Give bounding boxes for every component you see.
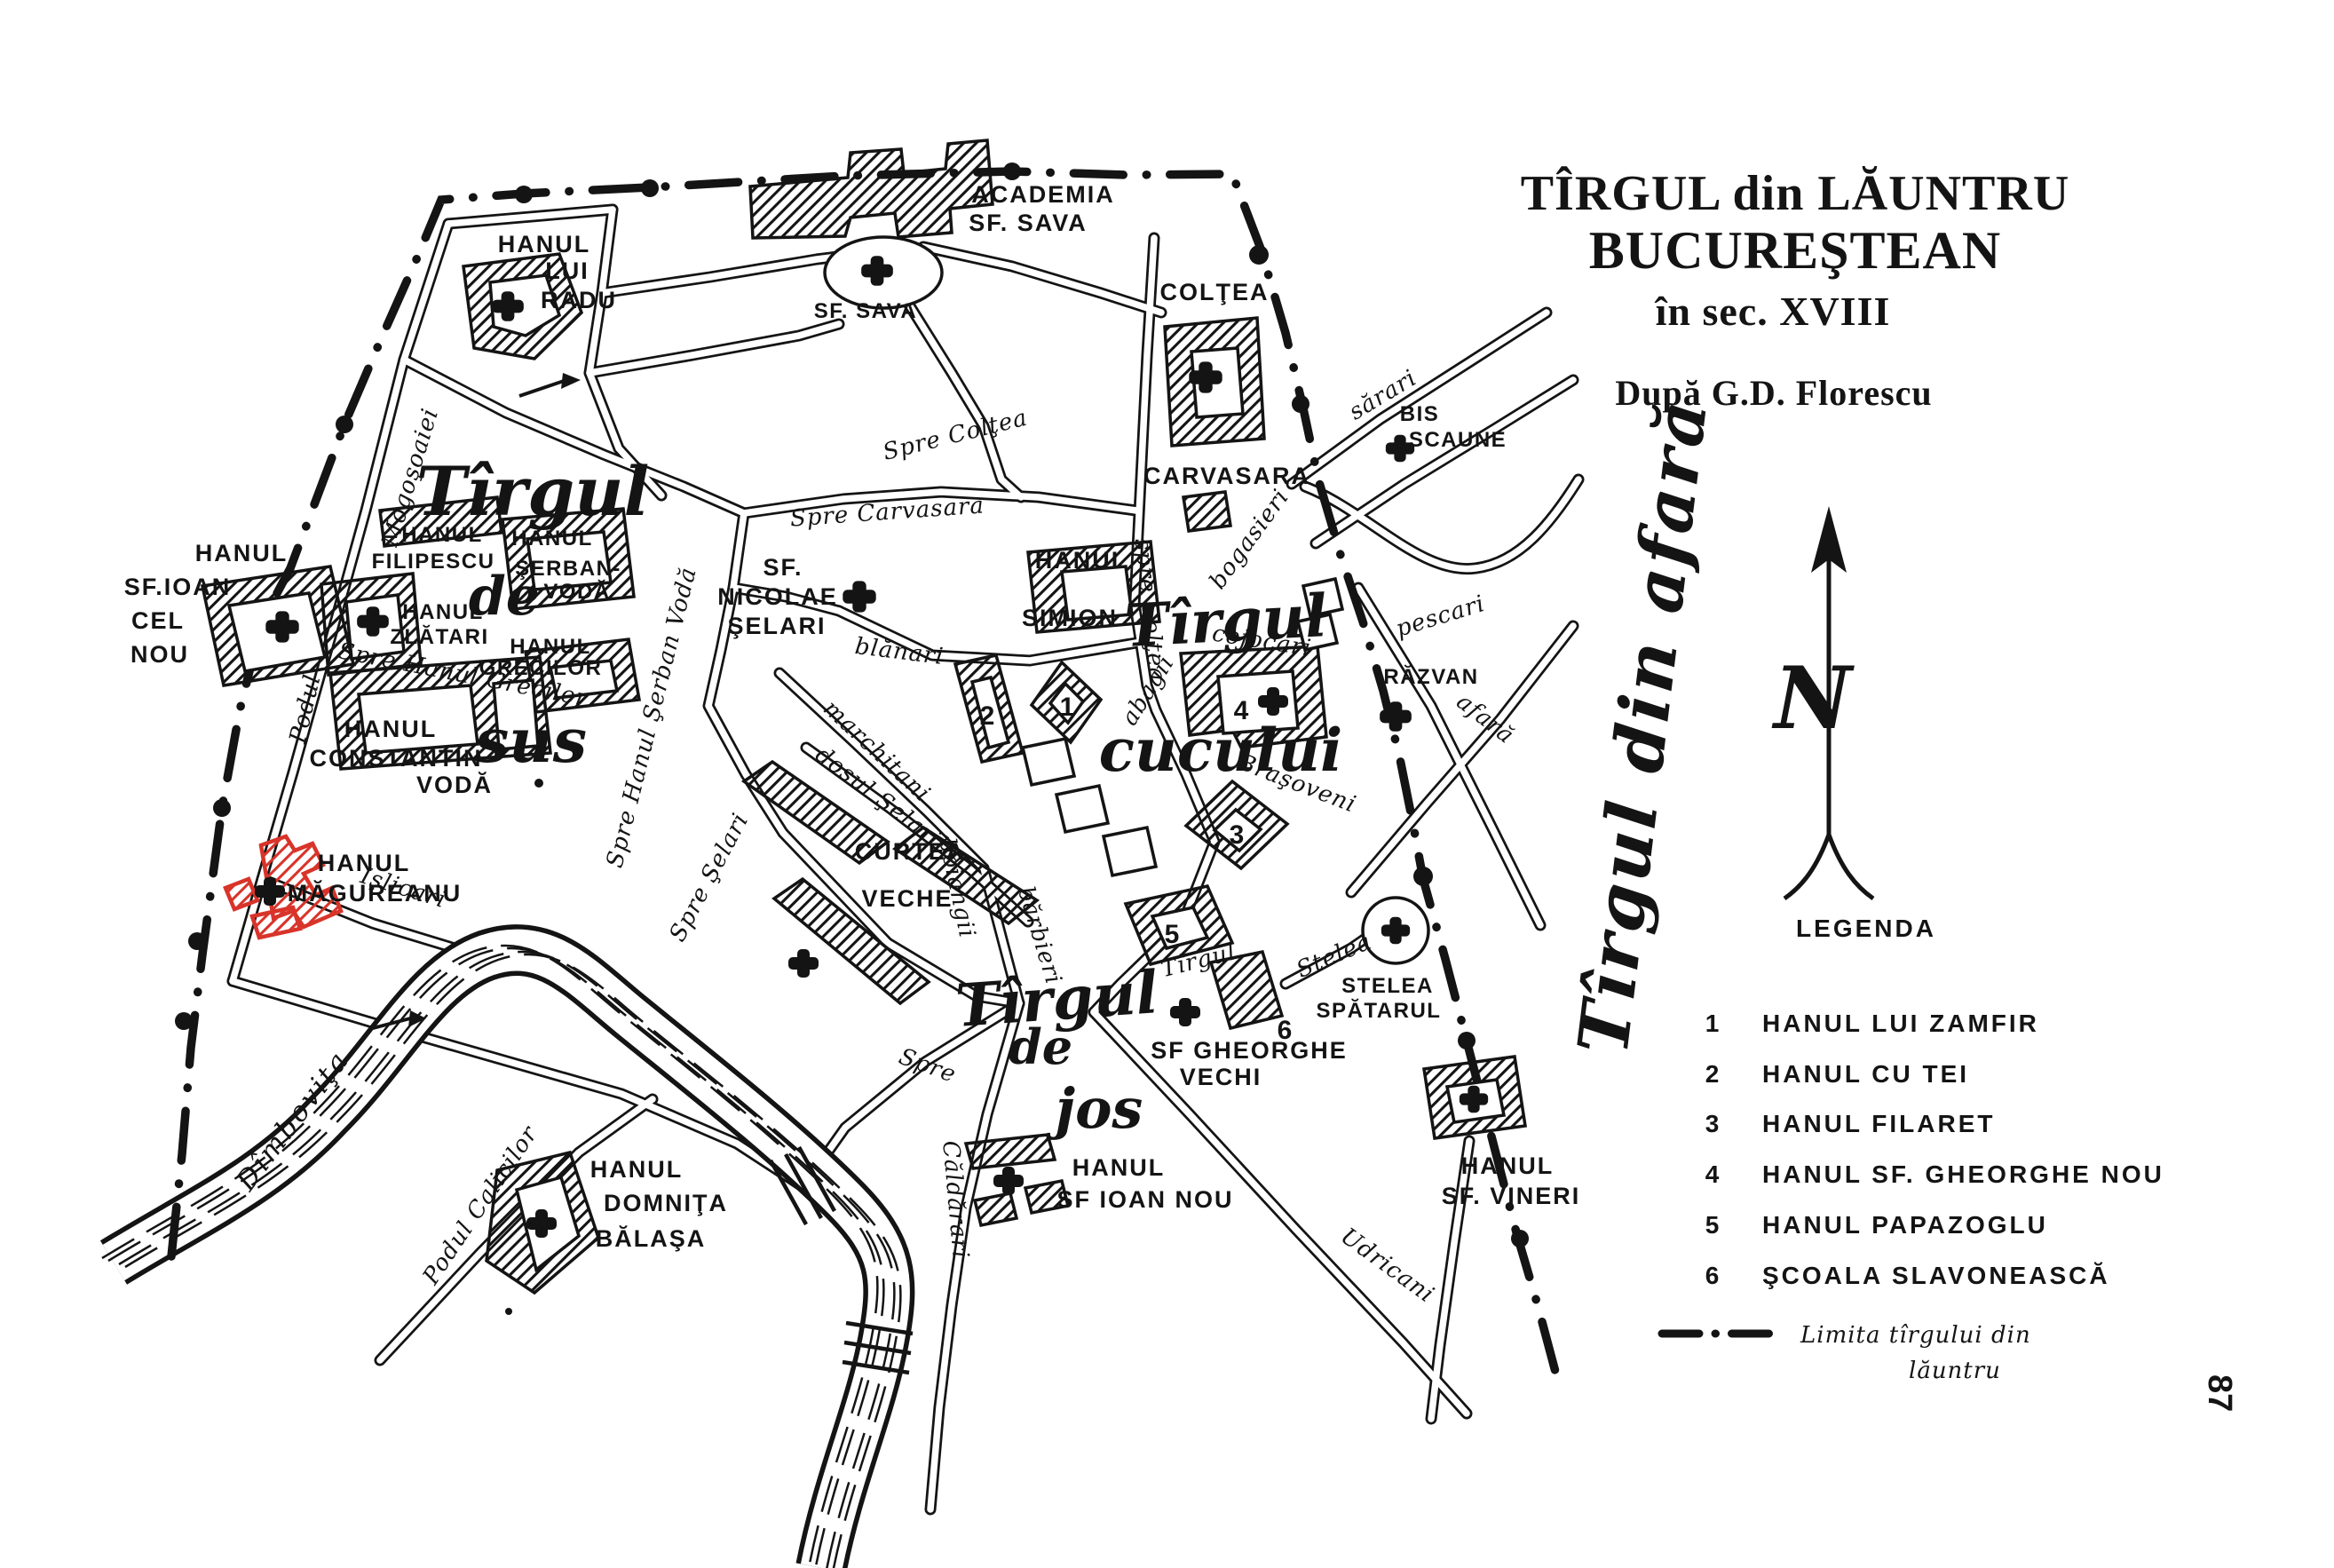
label-coltea: COLŢEA [1160, 279, 1270, 305]
label-constantin-voda: HANUL [344, 716, 438, 742]
district-tirgul-de-sus: de [469, 566, 540, 628]
label-domnita-balasa: BĂLAŞA [596, 1224, 707, 1252]
legend: LEGENDA 1 HANUL LUI ZAMFIR 2 HANUL CU TE… [1662, 915, 2164, 1384]
map-credit: După G.D. Florescu [1615, 373, 1932, 413]
building-sf-ioan-nou-strip [975, 1193, 1017, 1225]
label-bis-scaune: BIS [1400, 402, 1440, 426]
label-sf-sava: SF. SAVA [814, 299, 917, 323]
north-arrow-letter: N [1771, 648, 1855, 748]
page-number: 87 [2201, 1374, 2238, 1412]
label-magureanu: HANUL [318, 850, 411, 876]
label-magureanu: MĂGUREANU [288, 879, 463, 907]
label-sf-ioan-cel-nou: NOU [131, 641, 189, 668]
district-tirgul-de-jos: jos [1046, 1076, 1143, 1141]
district-tirgul-cucului: Tîrgul [1123, 581, 1329, 661]
label-zlatari: ZLĂTARI [390, 624, 488, 649]
label-simion: SIMION [1022, 605, 1118, 631]
district-tirgul-de-sus: sus [474, 706, 587, 777]
historic-map-figure: Spre Colţea spre Colţea Spre Carvasara b… [0, 0, 2334, 1568]
label-simion: HANUL [1035, 547, 1128, 574]
label-serban-voda: VODĂ [543, 579, 610, 604]
district-tirgul-din-afara: Tîrgul din afară [1563, 397, 1724, 1059]
road-arrowhead [561, 373, 581, 389]
legend-item-label: HANUL PAPAZOGLU [1762, 1211, 2048, 1239]
plot [1056, 786, 1108, 832]
label-domnita-balasa: HANUL [590, 1156, 684, 1183]
dot [534, 779, 543, 788]
label-sf-ioan-cel-nou: HANUL [195, 540, 289, 566]
building-number-6: 6 [1278, 1016, 1293, 1045]
label-academia: SF. SAVA [969, 210, 1088, 236]
church-icon [843, 581, 875, 612]
label-razvan: RĂZVAN [1383, 664, 1478, 689]
label-hanul-radu: LUI [545, 257, 589, 284]
label-bis-scaune: SCAUNE [1409, 428, 1507, 452]
label-grecilor: HANUL [510, 635, 591, 659]
label-sf-ioan-nou: SF IOAN NOU [1056, 1186, 1233, 1213]
legend-item-label: ŞCOALA SLAVONEASCĂ [1762, 1262, 2110, 1289]
building-carvasara [1183, 492, 1230, 531]
district-tirgul-cucului: cucului [1099, 716, 1342, 785]
street-label-podul: Podul [285, 671, 327, 747]
street-label-pescari: pescari [1393, 590, 1488, 643]
church-icon [993, 1167, 1024, 1195]
label-sf-vineri: HANUL [1461, 1152, 1555, 1179]
street-label-spre-coltea: Spre Colţea [881, 405, 1031, 466]
label-hanul-radu: RADU [541, 287, 617, 313]
label-sf-gheorghe-vechi: SF GHEORGHE [1151, 1037, 1348, 1064]
legend-items: 1 HANUL LUI ZAMFIR 2 HANUL CU TEI 3 HANU… [1705, 1010, 2164, 1289]
legend-item-label: HANUL SF. GHEORGHE NOU [1762, 1160, 2164, 1188]
dot [505, 1308, 512, 1315]
label-curtea-veche: CURTEA [855, 838, 966, 865]
map-title-line3: în sec. XVIII [1655, 289, 1891, 334]
plot [1023, 739, 1074, 785]
label-domnita-balasa: DOMNIŢA [604, 1190, 728, 1216]
legend-item-label: HANUL CU TEI [1762, 1060, 1969, 1088]
north-arrow: N [1771, 506, 1873, 899]
label-constantin-voda: CONSTANTIN [310, 745, 483, 772]
legend-boundary-label: lăuntru [1909, 1358, 2001, 1384]
label-stelea-spatarul: SPĂTARUL [1317, 998, 1442, 1023]
district-tirgul-de-sus: Tîrgul [416, 452, 650, 531]
label-sf-nicolae-selari: NICOLAE [717, 583, 838, 610]
label-grecilor: GRECILOR [479, 656, 603, 680]
building-number-4: 4 [1234, 696, 1249, 725]
legend-item-num: 3 [1705, 1110, 1722, 1137]
label-sf-gheorghe-vechi: VECHI [1180, 1064, 1262, 1090]
building-magureanu-annex [252, 907, 300, 938]
title-block: TÎRGUL din LĂUNTRU BUCUREŞTEAN în sec. X… [1521, 165, 2070, 413]
legend-item-num: 5 [1705, 1211, 1722, 1239]
label-sf-nicolae-selari: ŞELARI [727, 613, 826, 639]
street-label-caldarari: Căldărari [937, 1139, 974, 1260]
legend-item-label: HANUL LUI ZAMFIR [1762, 1010, 2039, 1037]
building-academia-sf-sava [750, 140, 993, 238]
label-stelea-spatarul: STELEA [1341, 974, 1434, 998]
building-number-5: 5 [1165, 920, 1180, 949]
map-title-line2: BUCUREŞTEAN [1589, 221, 2001, 280]
legend-item-num: 2 [1705, 1060, 1722, 1088]
street-label-spre-selari: Spre Şelari [664, 809, 754, 946]
label-hanul-radu: HANUL [498, 231, 591, 257]
street-label-blanari: blănari [853, 633, 945, 670]
label-sf-ioan-nou: HANUL [1072, 1154, 1166, 1181]
legend-item-num: 1 [1705, 1010, 1722, 1037]
label-sf-nicolae-selari: SF. [763, 554, 803, 581]
label-sf-ioan-cel-nou: CEL [131, 607, 185, 634]
label-curtea-veche: VECHE [861, 885, 953, 912]
legend-heading: LEGENDA [1796, 915, 1936, 942]
label-academia: ACADEMIA [971, 181, 1115, 208]
building-number-3: 3 [1230, 820, 1245, 850]
label-sf-vineri: SF. VINERI [1442, 1183, 1581, 1209]
street-label-spre-hanul-serban: Spre Hanul Şerban Vodă [602, 565, 702, 871]
building-number-1: 1 [1060, 693, 1075, 722]
plot [1104, 828, 1156, 875]
building-number-2: 2 [980, 701, 995, 731]
north-arrow-fletching [1784, 835, 1873, 899]
legend-item-num: 6 [1705, 1262, 1722, 1289]
legend-item-label: HANUL FILARET [1762, 1110, 1995, 1137]
label-sf-ioan-cel-nou: SF.IOAN [124, 574, 232, 600]
road-arrow [519, 380, 566, 396]
church-icon [1170, 998, 1200, 1026]
label-carvasara: CARVASARA [1143, 463, 1310, 489]
legend-boundary-label: Limita tîrgului din [1800, 1322, 2031, 1349]
legend-item-num: 4 [1705, 1160, 1722, 1188]
church-icon [788, 949, 819, 978]
district-tirgul-de-jos: de [1009, 1018, 1072, 1075]
map-title-line1: TÎRGUL din LĂUNTRU [1521, 165, 2070, 221]
